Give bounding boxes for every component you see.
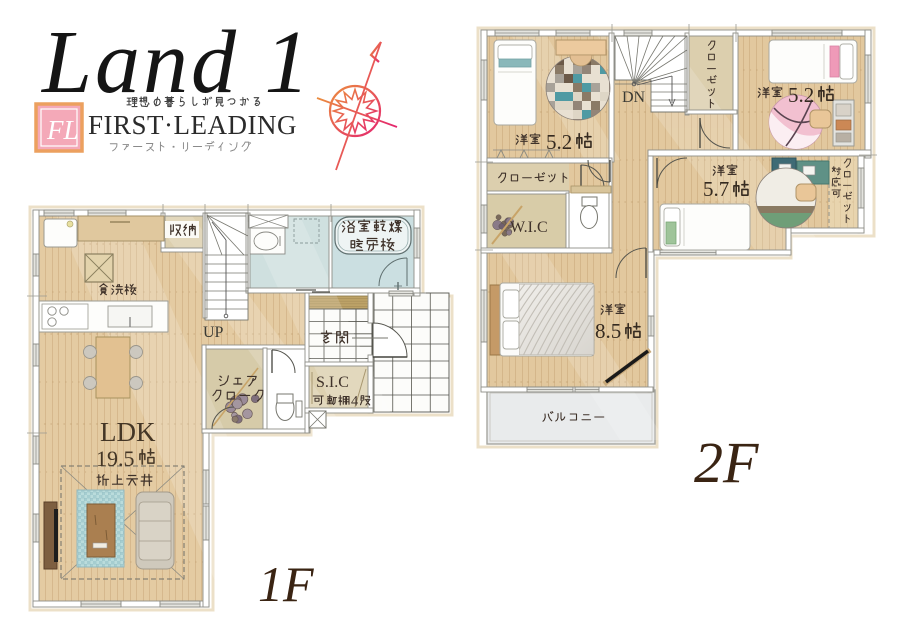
- svg-text:FIRST·LEADING: FIRST·LEADING: [88, 110, 297, 140]
- svg-text:1F: 1F: [258, 556, 314, 612]
- svg-text:2F: 2F: [694, 430, 759, 495]
- svg-text:DN: DN: [622, 89, 646, 106]
- svg-text:5.7: 5.7: [703, 177, 729, 201]
- svg-text:FL: FL: [46, 115, 79, 145]
- svg-text:8.5: 8.5: [595, 319, 621, 343]
- svg-text:UP: UP: [203, 324, 224, 341]
- svg-text:5.2: 5.2: [546, 130, 572, 154]
- svg-text:5.2: 5.2: [788, 83, 814, 107]
- svg-text:S.I.C: S.I.C: [316, 374, 349, 391]
- svg-text:Land 1: Land 1: [40, 13, 313, 112]
- svg-text:4: 4: [351, 394, 358, 410]
- svg-text:W.I.C: W.I.C: [510, 219, 548, 236]
- svg-text:LDK: LDK: [100, 417, 156, 447]
- svg-text:19.5: 19.5: [96, 446, 135, 471]
